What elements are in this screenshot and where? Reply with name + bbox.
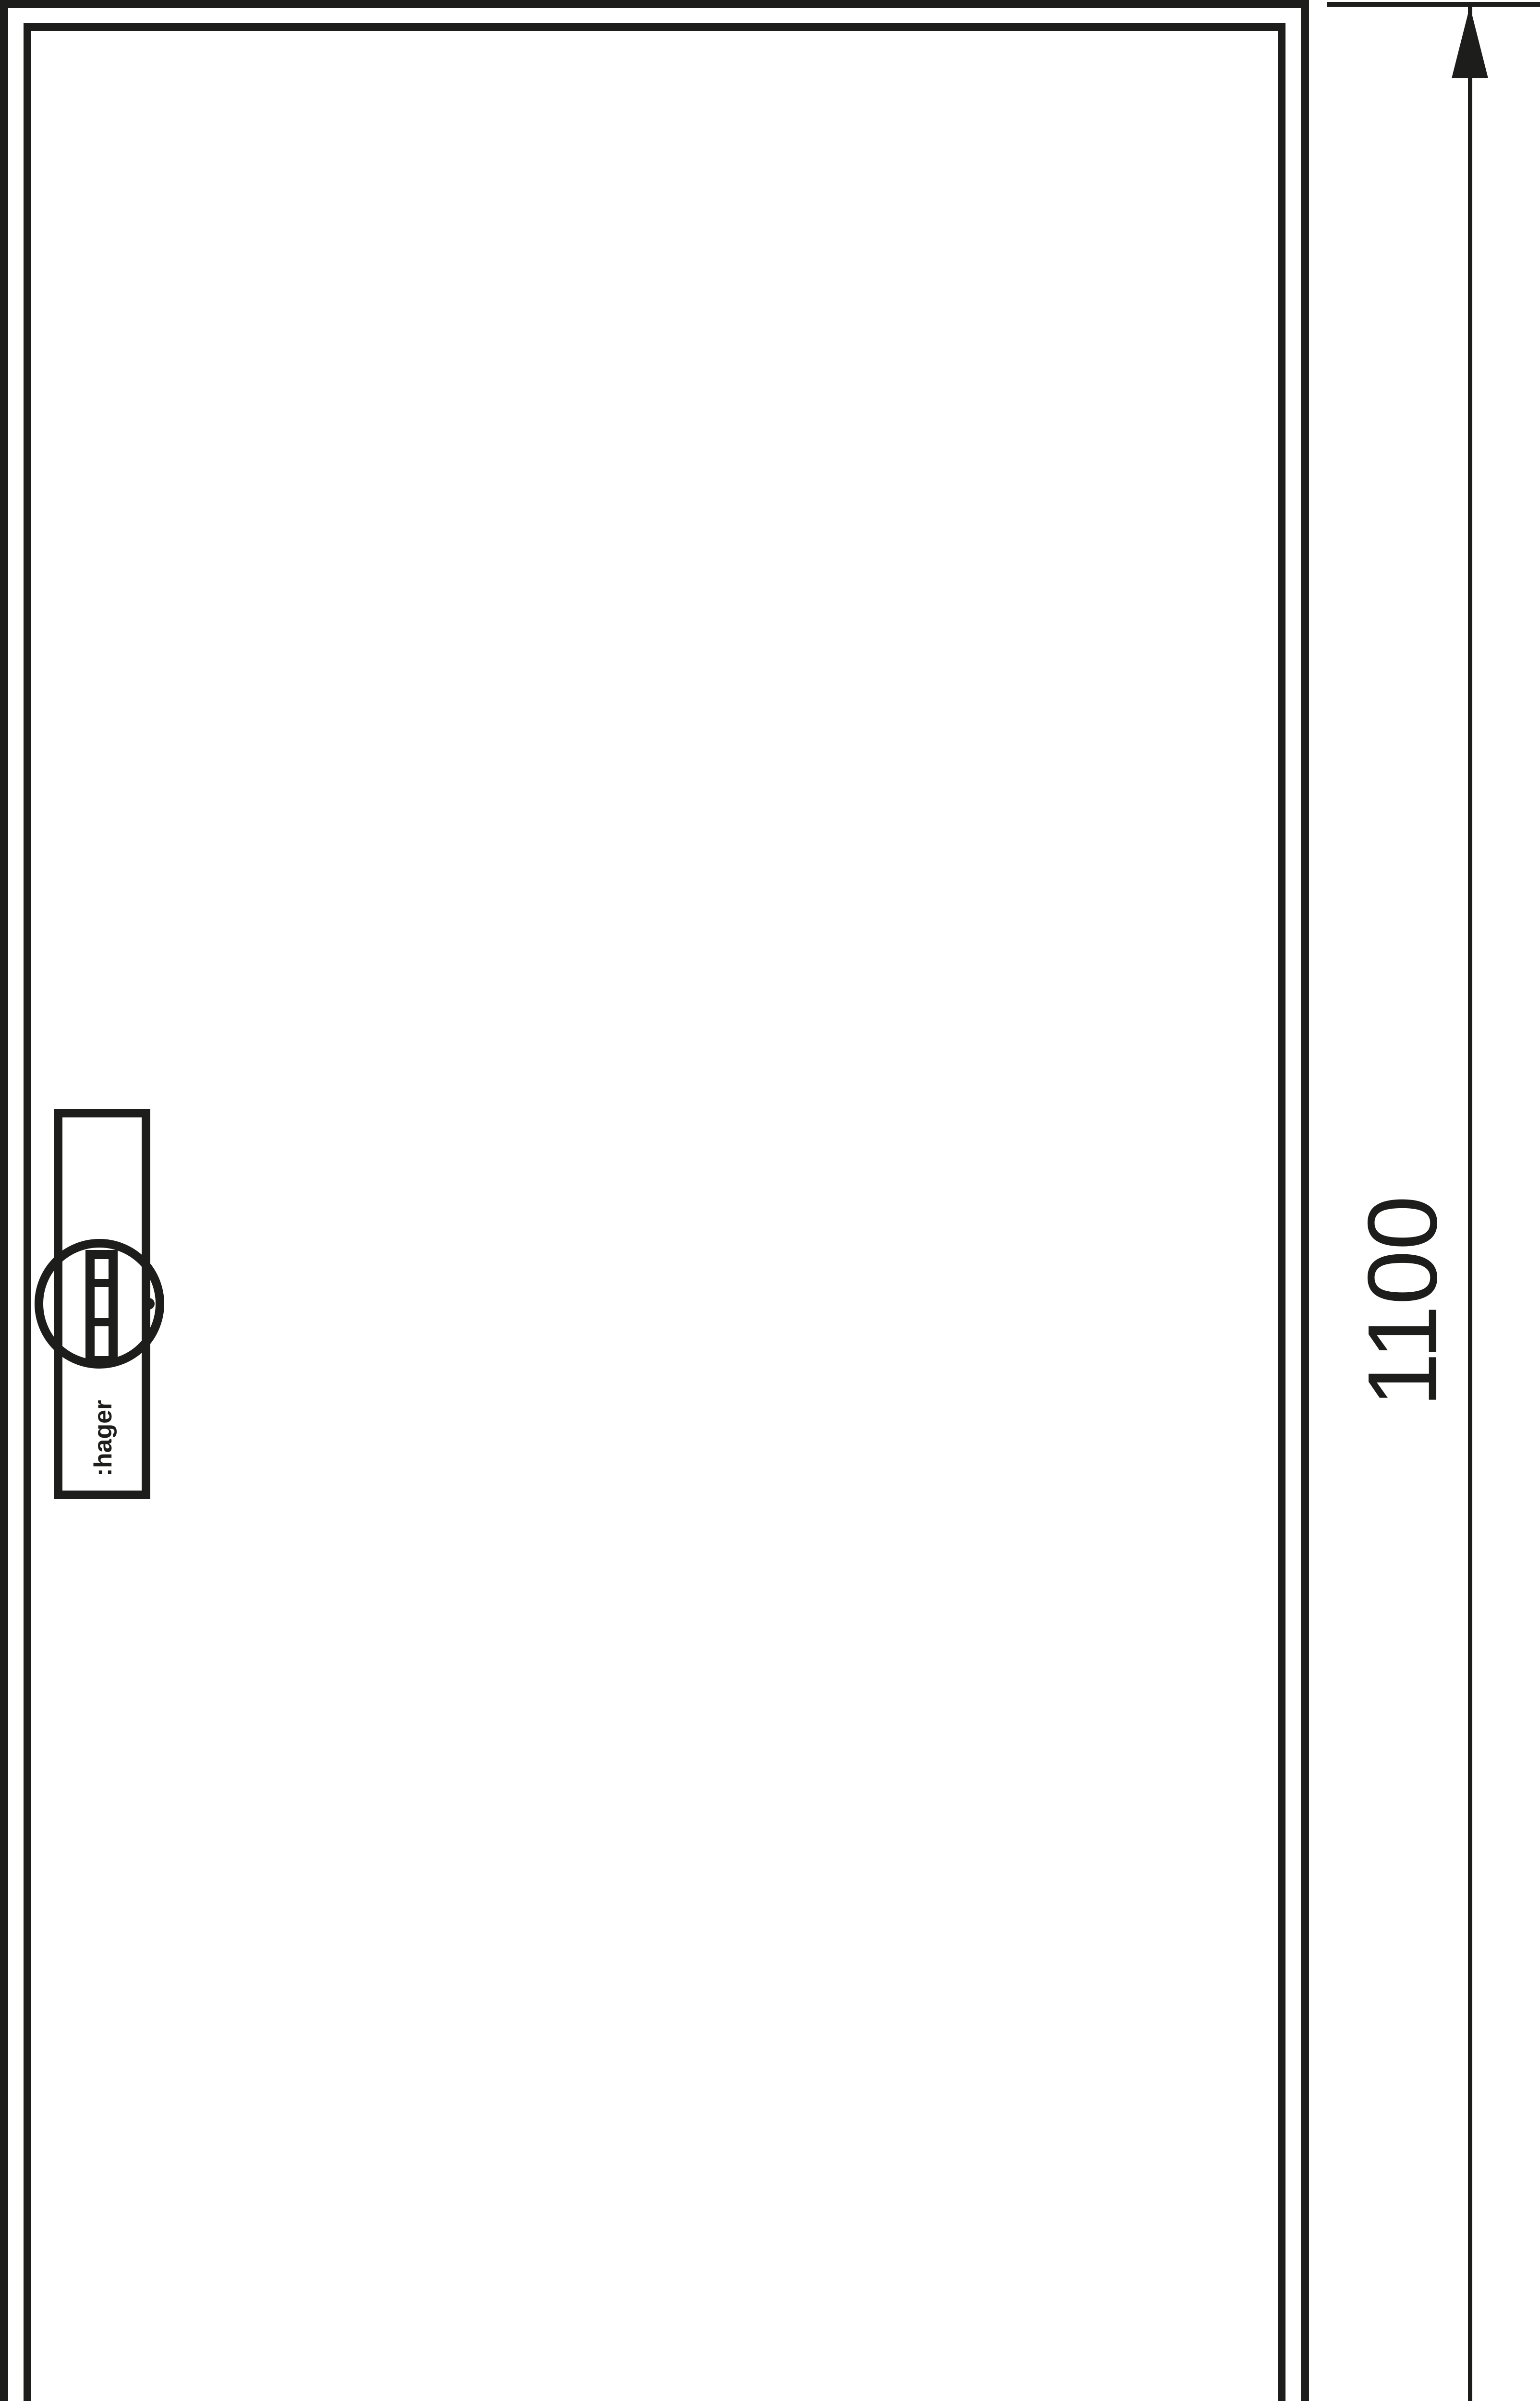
lock-dot-icon — [143, 1298, 155, 1310]
enclosure-door-outline — [24, 23, 1285, 2401]
lock-cylinder-rung — [95, 1318, 109, 1326]
lock-cylinder-rung — [95, 1279, 109, 1287]
dim-height-extension-line-top — [1327, 2, 1540, 7]
dim-height-label: 1100 — [1352, 1191, 1453, 1412]
dim-height-line — [1468, 6, 1472, 2401]
brand-logo: :hager — [91, 1397, 115, 1479]
lock-cylinder-icon — [85, 1250, 118, 1365]
arrow-up-icon — [1452, 6, 1488, 78]
